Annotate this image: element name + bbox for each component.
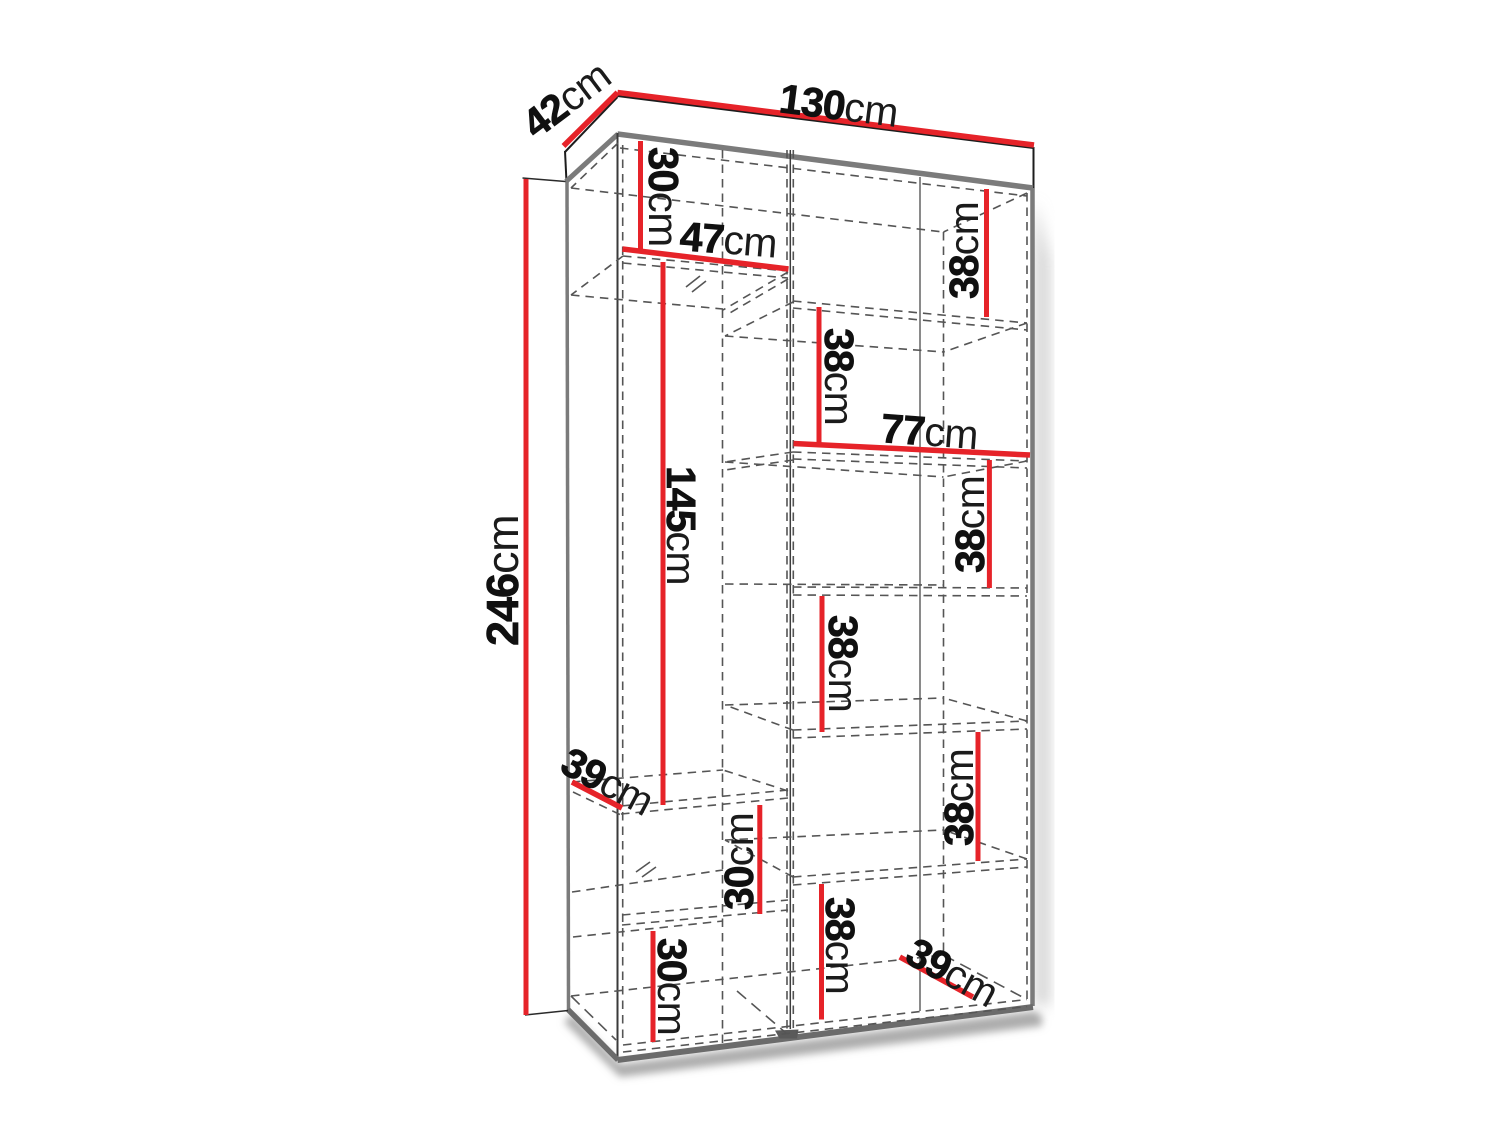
- svg-text:145cm: 145cm: [658, 466, 704, 585]
- svg-text:39cm: 39cm: [554, 738, 661, 824]
- svg-text:38cm: 38cm: [936, 749, 982, 846]
- svg-text:130cm: 130cm: [777, 75, 901, 136]
- svg-text:30cm: 30cm: [716, 813, 762, 910]
- svg-text:38cm: 38cm: [816, 328, 862, 425]
- svg-text:47cm: 47cm: [678, 213, 779, 266]
- svg-text:38cm: 38cm: [817, 897, 863, 994]
- svg-text:38cm: 38cm: [941, 202, 987, 299]
- svg-text:77cm: 77cm: [879, 405, 979, 458]
- svg-text:38cm: 38cm: [947, 476, 993, 573]
- svg-text:42cm: 42cm: [514, 52, 619, 147]
- svg-text:38cm: 38cm: [820, 615, 866, 712]
- svg-text:30cm: 30cm: [649, 938, 695, 1035]
- svg-text:39cm: 39cm: [899, 929, 1006, 1016]
- svg-text:246cm: 246cm: [477, 515, 528, 646]
